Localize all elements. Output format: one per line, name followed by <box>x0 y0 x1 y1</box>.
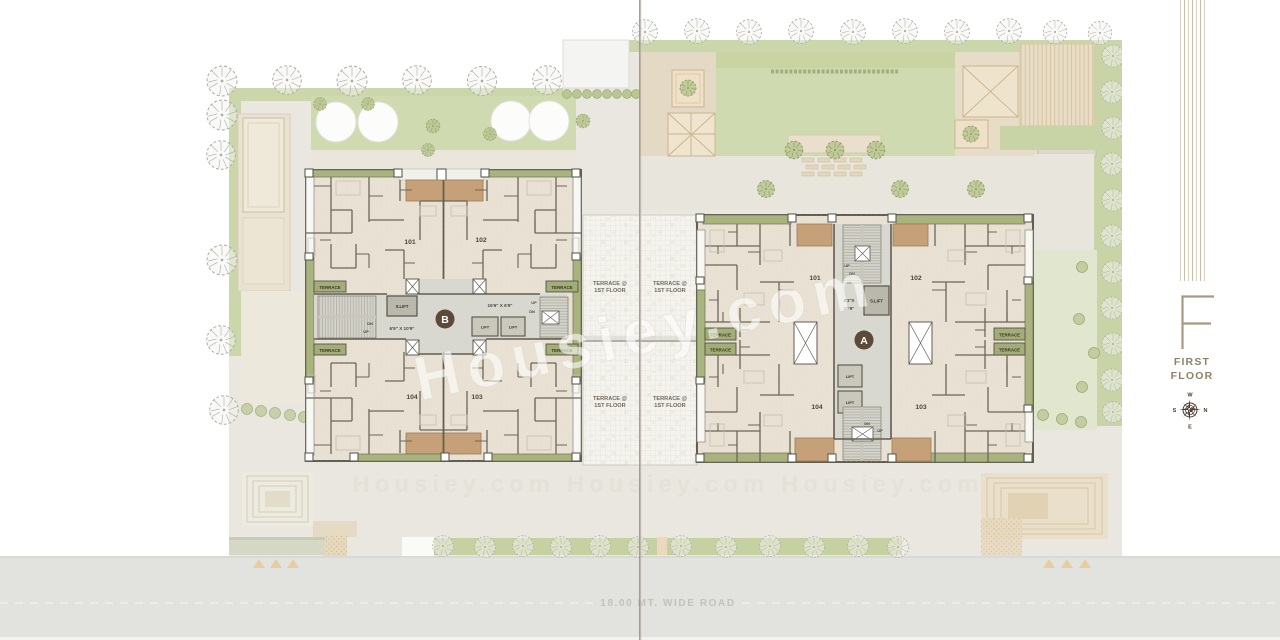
svg-text:102: 102 <box>475 237 487 244</box>
svg-text:E: E <box>1188 425 1192 431</box>
svg-text:N: N <box>1204 408 1208 414</box>
svg-text:TERRACE: TERRACE <box>319 285 340 290</box>
svg-text:DN: DN <box>529 309 535 314</box>
svg-text:101: 101 <box>404 239 416 246</box>
svg-text:A: A <box>860 335 868 347</box>
svg-text:S: S <box>1173 408 1177 414</box>
svg-text:W: W <box>1187 393 1193 399</box>
svg-text:104: 104 <box>406 394 418 401</box>
svg-text:UP: UP <box>877 428 883 433</box>
svg-text:LIFT: LIFT <box>846 374 855 379</box>
svg-text:LIFT: LIFT <box>846 400 855 405</box>
svg-text:TERRACE: TERRACE <box>999 333 1020 338</box>
svg-text:18.00 MT. WIDE ROAD: 18.00 MT. WIDE ROAD <box>600 598 735 609</box>
svg-text:S.LIFT: S.LIFT <box>396 304 409 309</box>
svg-text:TERRACE @: TERRACE @ <box>653 396 688 402</box>
svg-text:UP: UP <box>531 300 537 305</box>
svg-text:Housiey.com Housiey.com Housie: Housiey.com Housiey.com Housiey.com <box>352 471 983 498</box>
svg-text:16'6" X 6'9": 16'6" X 6'9" <box>488 303 513 308</box>
svg-text:TERRACE @: TERRACE @ <box>653 281 688 287</box>
svg-text:UP: UP <box>363 329 369 334</box>
svg-text:DN: DN <box>864 421 870 426</box>
svg-text:B: B <box>441 314 449 326</box>
svg-text:DN: DN <box>367 321 373 326</box>
svg-text:103: 103 <box>915 404 927 411</box>
svg-text:LIFT: LIFT <box>481 325 490 330</box>
svg-text:1ST FLOOR: 1ST FLOOR <box>654 403 685 409</box>
svg-text:TERRACE @: TERRACE @ <box>593 396 628 402</box>
svg-text:TERRACE: TERRACE <box>999 348 1020 353</box>
svg-text:104: 104 <box>811 404 823 411</box>
svg-text:1ST FLOOR: 1ST FLOOR <box>594 288 625 294</box>
svg-text:1ST FLOOR: 1ST FLOOR <box>594 403 625 409</box>
svg-text:TERRACE @: TERRACE @ <box>593 281 628 287</box>
svg-text:6'9" X 10'9": 6'9" X 10'9" <box>390 326 415 331</box>
svg-text:TERRACE: TERRACE <box>551 285 572 290</box>
svg-text:TERRACE: TERRACE <box>319 348 340 353</box>
svg-text:FLOOR: FLOOR <box>1171 370 1214 382</box>
svg-text:FIRST: FIRST <box>1174 356 1210 368</box>
svg-text:102: 102 <box>910 275 922 282</box>
